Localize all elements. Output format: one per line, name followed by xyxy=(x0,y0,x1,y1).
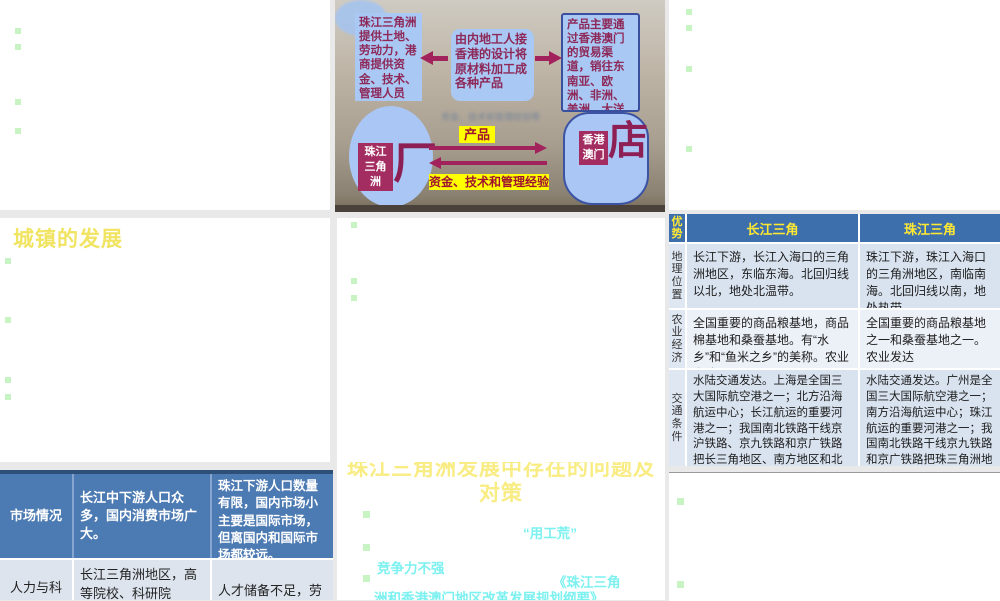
bullet-icon xyxy=(351,295,357,301)
capital-tech-tag: 资金、技术和管理经验 xyxy=(429,174,549,190)
slide-top-right[interactable] xyxy=(669,0,1000,210)
column-header-zhujiang: 珠江三角 xyxy=(860,214,1000,242)
bullet-icon xyxy=(677,498,684,505)
arrow-right-icon xyxy=(535,51,562,65)
row-label-talent: 人力与科 xyxy=(0,558,72,600)
photo-edge xyxy=(335,205,665,212)
bullet-icon xyxy=(15,99,21,105)
bullet-icon xyxy=(677,581,684,588)
table-cell: 珠江下游人口数量有限，国内市场小主要是国际市场，但离国内和国际市场都较远。 xyxy=(210,474,333,558)
bullet-icon xyxy=(686,66,692,72)
table-cell: 长江中下游人口众多，国内消费市场广大。 xyxy=(72,474,210,558)
slide-title: 珠江三角洲发展中存在的问题及 对策 xyxy=(337,462,665,507)
diagram-label-hongkong-macau: 香港澳门 xyxy=(579,131,608,165)
table-cell: 水陆交通发达。上海是全国三大国际航空港之一；北方沿海航运中心；长江航运的重要河港… xyxy=(687,370,858,466)
bullet-icon xyxy=(5,258,11,264)
bullet-icon xyxy=(351,278,357,284)
bullet-icon xyxy=(686,146,692,152)
comparison-table: 优势 长江三角 珠江三角 地理位置 长江下游，长江入海口的三角洲地区，东临东海。… xyxy=(669,214,1000,466)
bullet-icon xyxy=(5,317,11,323)
shop-character: 店 xyxy=(608,121,648,161)
bullet-icon xyxy=(351,222,357,228)
row-label-agriculture: 农业经济 xyxy=(669,310,685,368)
arrow-left-icon xyxy=(420,51,448,65)
slide-comparison-table[interactable]: 优势 长江三角 珠江三角 地理位置 长江下游，长江入海口的三角洲地区，东临东海。… xyxy=(669,214,1000,466)
long-arrow-right-icon xyxy=(429,142,547,154)
row-label-transport: 交通条件 xyxy=(669,370,685,466)
diagram-label-pearl-delta: 珠江三角洲 xyxy=(358,143,393,191)
slide-market-table[interactable]: 市场情况 长江中下游人口众多，国内消费市场广大。 珠江下游人口数量有限，国内市场… xyxy=(0,470,333,600)
photo-faint-caption: 资金、技术和管理经验等 xyxy=(441,110,540,123)
table-cell: 全国重要的商品粮基地之一和桑蚕基地之一。农业发达 xyxy=(860,310,1000,368)
bullet-icon xyxy=(15,128,21,134)
slide-middle-blank[interactable] xyxy=(337,218,665,462)
bullet-icon xyxy=(15,44,21,50)
slide-top-left[interactable] xyxy=(0,0,330,210)
bullet-icon xyxy=(363,544,370,551)
slide-photo-diagram[interactable]: 资金、技术和管理经验等 珠江三角 珠江三角洲提供土地、劳动力，港商提供资金、技术… xyxy=(335,0,665,212)
bullet-icon xyxy=(5,377,11,383)
diagram-box-pearl-provides: 珠江三角洲提供土地、劳动力，港商提供资金、技术、管理人员 xyxy=(355,13,422,101)
row-label-geography: 地理位置 xyxy=(669,244,685,308)
market-table: 市场情况 长江中下游人口众多，国内消费市场广大。 珠江下游人口数量有限，国内市场… xyxy=(0,470,333,600)
table-cell: 水陆交通发达。广州是全国三大国际航空港之一；南方沿海航运中心；珠江航运的重要河港… xyxy=(860,370,1000,466)
table-cell: 珠江下游，珠江入海口的三角洲地区，南临南海。北回归线以南，地处热带。 xyxy=(860,244,1000,308)
bullet-icon xyxy=(363,511,370,518)
diagram-box-export: 产品主要通过香港澳门的贸易渠道，销往东南亚、欧洲、非洲、美洲、大洋洲等地区 xyxy=(561,13,640,112)
table-cell: 长江下游，长江入海口的三角洲地区，东临东海。北回归线以北，地处北温带。 xyxy=(687,244,858,308)
table-cell: 人才储备不足，劳 xyxy=(210,558,333,600)
slide-title-line1: 珠江三角洲发展中存在的问题及 xyxy=(337,462,665,482)
table-corner-label: 优势 xyxy=(669,214,685,242)
slide-title: 城镇的发展 xyxy=(13,223,123,253)
problem-competitiveness: 竞争力不强 xyxy=(377,557,445,577)
slide-title-line2: 对策 xyxy=(337,482,665,507)
diagram-box-processing: 由内地工人接香港的设计将原材料加工成各种产品 xyxy=(451,29,534,101)
product-tag: 产品 xyxy=(459,126,495,143)
bullet-icon xyxy=(686,9,692,15)
slide-bottom-right[interactable] xyxy=(669,472,1000,601)
bullet-icon xyxy=(686,25,692,31)
bullet-icon xyxy=(363,575,370,582)
long-arrow-left-icon xyxy=(429,157,547,169)
bullet-icon xyxy=(15,28,21,34)
policy-outline-line2: 洲和香港澳门地区改革发展规划纲要》 xyxy=(374,587,604,600)
slide-problems[interactable]: 珠江三角洲发展中存在的问题及 对策 “用工荒” 竞争力不强 《珠江三角 洲和香港… xyxy=(337,462,665,600)
table-cell: 全国重要的商品粮基地，商品棉基地和桑蚕基地。有“水乡”和“鱼米之乡”的美称。农业… xyxy=(687,310,858,368)
problem-labor-shortage: “用工荒” xyxy=(523,522,577,542)
slide-towns-development[interactable]: 城镇的发展 xyxy=(0,218,330,462)
table-cell: 长江三角洲地区，高等院校、科研院 xyxy=(72,558,210,600)
row-label-market: 市场情况 xyxy=(0,474,72,558)
column-header-changjiang: 长江三角 xyxy=(687,214,858,242)
bullet-icon xyxy=(5,394,11,400)
